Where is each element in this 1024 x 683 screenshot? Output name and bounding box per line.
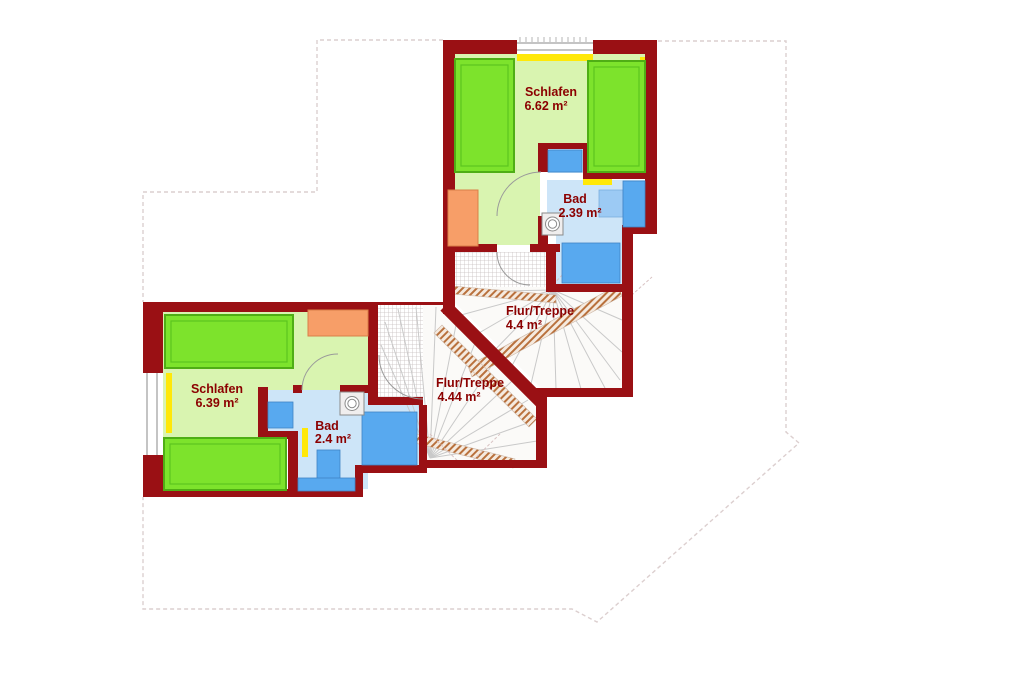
bathtub-top bbox=[623, 181, 645, 227]
label-bad-bottom-name: Bad bbox=[315, 419, 339, 433]
wc-icon-bottom bbox=[340, 392, 364, 415]
shelf-yellow-bath-bottom bbox=[302, 428, 308, 457]
label-flur1-name: Flur/Treppe bbox=[506, 304, 574, 318]
label-schlafen-bottom-name: Schlafen bbox=[191, 382, 243, 396]
label-flur2-name: Flur/Treppe bbox=[436, 376, 504, 390]
floor-plan-svg: Schlafen 6.62 m² Bad 2.39 m² Flur/Treppe… bbox=[0, 0, 1024, 683]
bed-top-left bbox=[455, 59, 514, 172]
label-bad-bottom-area: 2.4 m² bbox=[315, 432, 351, 446]
label-bad-top-area: 2.39 m² bbox=[558, 206, 601, 220]
label-schlafen-top-area: 6.62 m² bbox=[524, 99, 567, 113]
bed-bottom-1 bbox=[165, 315, 293, 368]
label-flur1-area: 4.4 m² bbox=[506, 318, 542, 332]
label-schlafen-bottom-area: 6.39 m² bbox=[195, 396, 238, 410]
shower-top bbox=[562, 243, 620, 283]
floor-plan-page: Schlafen 6.62 m² Bad 2.39 m² Flur/Treppe… bbox=[0, 0, 1024, 683]
counter-top bbox=[599, 190, 623, 217]
label-flur2-area: 4.44 m² bbox=[437, 390, 480, 404]
void-hatch-lower bbox=[378, 303, 423, 397]
bed-top-right bbox=[588, 61, 645, 172]
label-schlafen-top-name: Schlafen bbox=[525, 85, 577, 99]
label-bad-top-name: Bad bbox=[563, 192, 587, 206]
window-sill-yellow bbox=[517, 54, 593, 61]
cabinet-orange-top bbox=[448, 190, 478, 246]
cabinet-orange-bottom bbox=[308, 310, 368, 336]
window-top bbox=[517, 36, 593, 61]
window-sill-yellow-left bbox=[166, 373, 172, 433]
tub-bottom bbox=[298, 478, 355, 491]
shower-bottom bbox=[362, 412, 417, 465]
sink-top bbox=[548, 150, 582, 172]
bed-bottom-2 bbox=[164, 438, 286, 490]
sink-bottom bbox=[268, 402, 293, 428]
shelf-yellow-bath-top bbox=[583, 179, 612, 185]
